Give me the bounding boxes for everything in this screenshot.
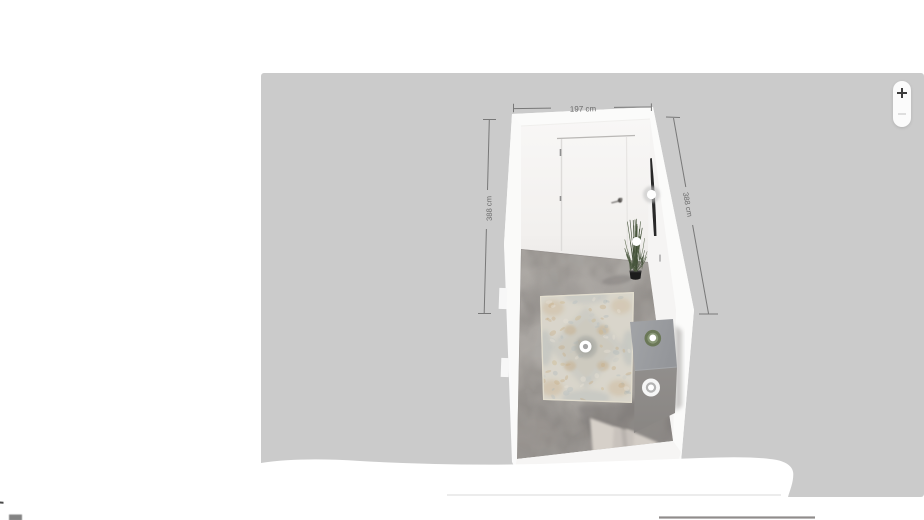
svg-text:197 cm: 197 cm — [570, 104, 597, 113]
svg-text:388 cm: 388 cm — [484, 196, 494, 221]
